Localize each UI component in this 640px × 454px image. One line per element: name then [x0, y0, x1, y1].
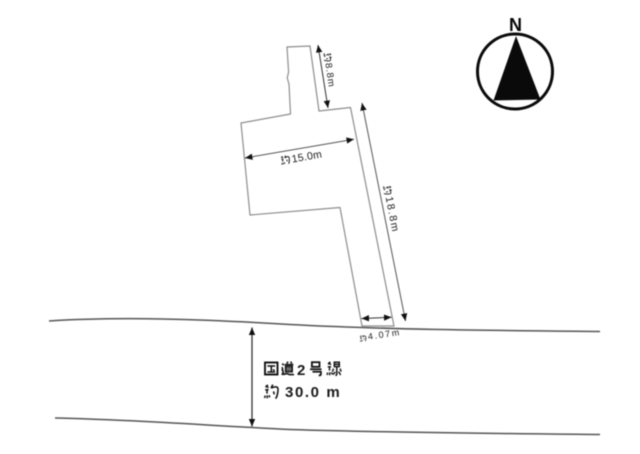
svg-text:2: 2	[297, 362, 305, 379]
svg-text:30.0 m: 30.0 m	[285, 384, 341, 401]
svg-text:N: N	[509, 15, 522, 35]
